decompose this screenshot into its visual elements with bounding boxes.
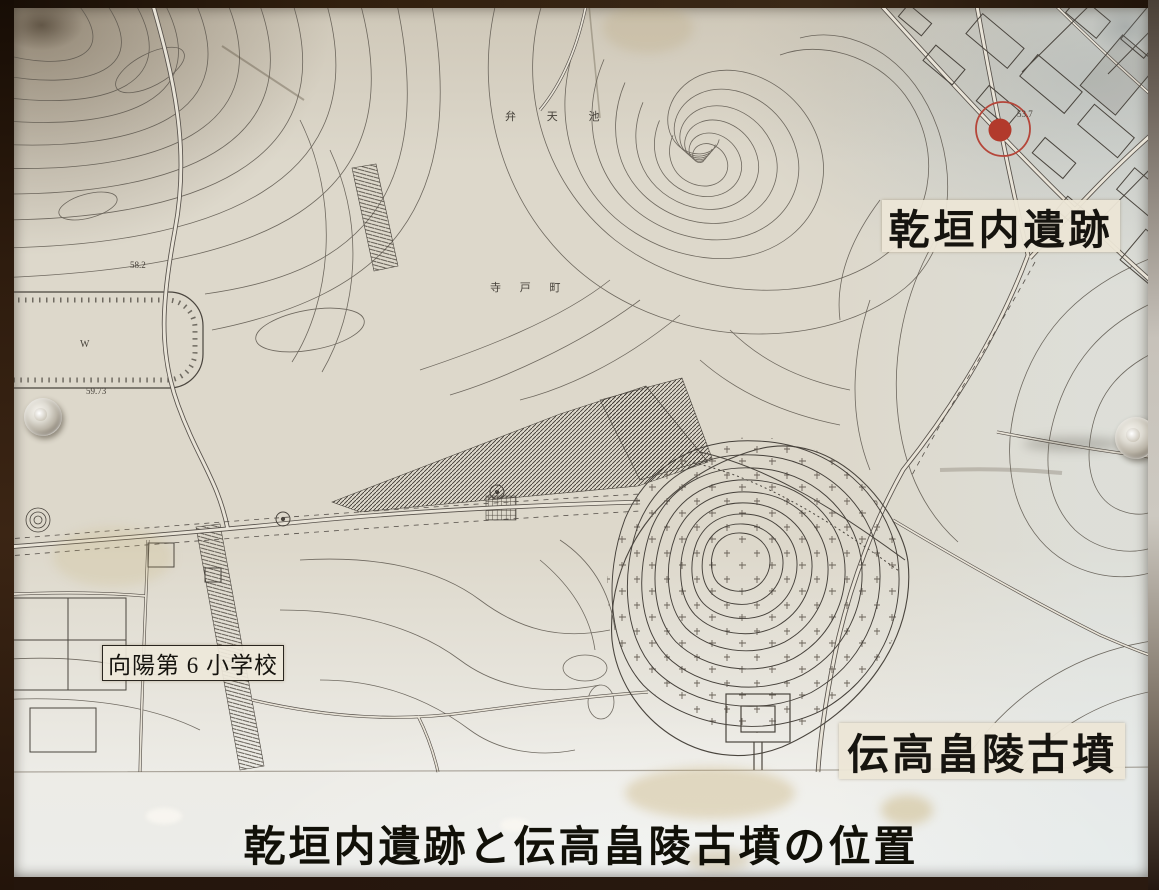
site-label: 乾垣内遺跡 (882, 200, 1120, 252)
contours-swirl (420, 0, 948, 425)
school-label: 向陽第 6 小学校 (102, 645, 284, 681)
kofun-label: 伝高畠陵古墳 (839, 723, 1125, 779)
wood-frame-top (0, 0, 1159, 8)
knob-shadow (1023, 437, 1123, 451)
contours-bottom (0, 540, 615, 753)
site-marker-dot (989, 119, 1012, 142)
wood-frame-bottom (0, 876, 1159, 890)
board-title: 乾垣内遺跡と伝高畠陵古墳の位置 (13, 813, 1149, 874)
map-board: 乾垣内遺跡 伝高畠陵古墳 向陽第 6 小学校 乾垣内遺跡と伝高畠陵古墳の位置 弁… (13, 7, 1149, 877)
contours-right (839, 200, 1159, 772)
wood-frame-right (1148, 0, 1159, 890)
signboard-photo: 乾垣内遺跡 伝高畠陵古墳 向陽第 6 小学校 乾垣内遺跡と伝高畠陵古墳の位置 弁… (0, 0, 1159, 890)
wood-frame-left (0, 0, 14, 890)
glass-fastener-left (24, 398, 62, 436)
